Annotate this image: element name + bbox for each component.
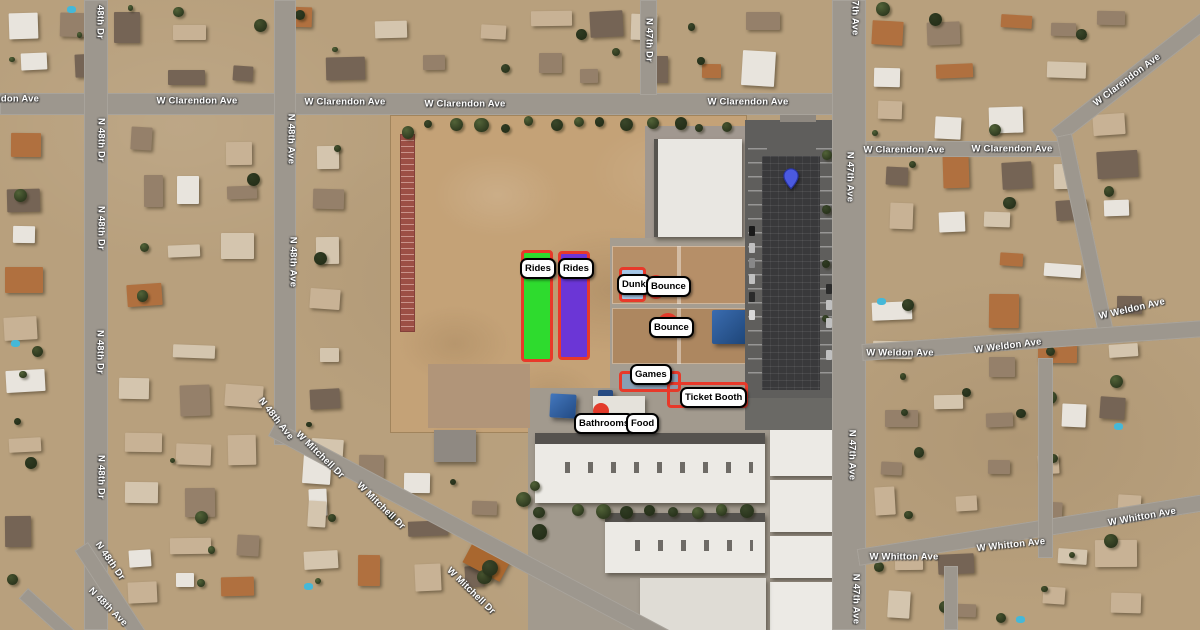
- tree: [688, 23, 696, 31]
- tree: [137, 290, 148, 301]
- house: [9, 437, 42, 452]
- roof-vents: [617, 540, 753, 551]
- house: [125, 432, 162, 451]
- tree: [328, 514, 336, 522]
- house: [874, 67, 901, 86]
- tree: [644, 505, 655, 516]
- house: [472, 500, 497, 514]
- car: [749, 310, 755, 320]
- street-label: W Clarendon Ave: [425, 99, 506, 110]
- callout-ticket-booth: Ticket Booth: [680, 387, 747, 408]
- car: [749, 258, 755, 268]
- house: [1099, 396, 1125, 419]
- street-label: N 48th Dr: [95, 330, 106, 374]
- house: [221, 577, 254, 597]
- house: [942, 154, 969, 188]
- tree: [989, 124, 1001, 136]
- house: [5, 267, 43, 293]
- street-label: N 48th Dr: [96, 455, 107, 499]
- callout-games: Games: [630, 364, 672, 385]
- tree: [900, 373, 907, 380]
- tree: [208, 546, 216, 554]
- house: [580, 68, 598, 83]
- house: [236, 535, 259, 557]
- pool: [1114, 423, 1123, 430]
- tree: [876, 2, 890, 16]
- tree: [929, 13, 942, 26]
- pool: [11, 340, 20, 347]
- house: [144, 175, 164, 208]
- callout-rides: Rides: [520, 258, 556, 279]
- tree: [501, 64, 510, 73]
- house: [423, 54, 445, 70]
- tree: [574, 117, 584, 127]
- house: [531, 11, 573, 26]
- tree: [19, 371, 26, 378]
- house: [320, 348, 339, 362]
- house: [885, 166, 908, 185]
- road-n-48th-dr: [84, 0, 108, 630]
- road-n-48th-ave: [274, 0, 296, 445]
- tree: [872, 130, 878, 136]
- tree: [1104, 186, 1115, 197]
- tree: [620, 506, 633, 519]
- house: [176, 573, 195, 587]
- tree: [1110, 375, 1123, 388]
- tree: [576, 29, 587, 40]
- tree: [1076, 29, 1087, 40]
- house: [127, 581, 157, 604]
- house: [309, 388, 340, 410]
- tree: [402, 126, 415, 139]
- tree: [697, 57, 705, 65]
- tree: [668, 507, 678, 517]
- road-side-street: [944, 566, 958, 630]
- street-label: ndon Ave: [0, 94, 39, 105]
- house: [741, 50, 776, 87]
- pool: [67, 6, 76, 13]
- house: [221, 233, 254, 259]
- tree: [195, 511, 208, 524]
- house: [228, 435, 257, 465]
- car: [749, 226, 755, 236]
- house: [1001, 161, 1033, 189]
- street-label: N 47th Dr: [644, 18, 655, 62]
- playground-pad: [428, 364, 530, 428]
- house: [1044, 262, 1082, 278]
- tree: [1104, 534, 1118, 548]
- street-label: N 47th Ave: [845, 152, 856, 202]
- house: [1047, 61, 1086, 79]
- pool: [304, 583, 313, 590]
- tree: [170, 458, 175, 463]
- tree: [32, 346, 43, 357]
- outbuilding: [434, 430, 476, 462]
- house: [887, 591, 911, 619]
- tree: [173, 7, 184, 18]
- tree: [675, 117, 687, 129]
- house: [414, 564, 441, 592]
- house: [173, 344, 215, 358]
- parking-lot: [745, 120, 838, 398]
- tree: [822, 205, 831, 214]
- tree: [9, 57, 14, 62]
- house: [746, 12, 780, 30]
- house: [934, 395, 963, 410]
- house: [375, 21, 407, 39]
- street-label: N 48th Dr: [96, 118, 107, 162]
- house: [889, 202, 913, 229]
- tree: [962, 388, 971, 397]
- tree: [334, 145, 341, 152]
- house: [130, 126, 153, 150]
- tree: [532, 524, 547, 539]
- tree: [914, 447, 924, 457]
- tree: [716, 504, 727, 515]
- house: [304, 550, 339, 570]
- house: [1000, 14, 1032, 29]
- school-building: [770, 582, 838, 630]
- callout-bounce: Bounce: [646, 276, 691, 297]
- house: [934, 116, 961, 140]
- tree: [295, 10, 305, 20]
- tree: [524, 116, 533, 125]
- house: [589, 10, 623, 38]
- tree: [254, 19, 267, 32]
- school-building: [654, 139, 742, 237]
- tree: [1016, 409, 1025, 418]
- street-label: N 48th Ave: [286, 114, 297, 164]
- house: [4, 317, 38, 342]
- street-label: N 48th Dr: [96, 206, 107, 250]
- road-n-47th-ave: [832, 0, 866, 630]
- car: [749, 274, 755, 284]
- tree: [247, 173, 260, 186]
- house: [168, 70, 205, 85]
- street-label: 7th Ave: [850, 0, 861, 35]
- house: [1092, 113, 1125, 136]
- house: [358, 555, 380, 586]
- callout-rides: Rides: [558, 258, 594, 279]
- house: [955, 495, 977, 511]
- street-label: 48th Dr: [95, 5, 106, 39]
- street-label: N 47th Ave: [851, 574, 862, 624]
- tree: [647, 117, 659, 129]
- tree: [474, 118, 488, 132]
- tree: [1041, 586, 1048, 593]
- tree: [77, 32, 82, 37]
- tree: [530, 481, 540, 491]
- house: [936, 63, 973, 79]
- house: [226, 186, 256, 200]
- house: [5, 516, 31, 547]
- street-label: W Weldon Ave: [866, 348, 934, 359]
- house: [880, 461, 901, 475]
- tree: [128, 5, 133, 10]
- tree: [996, 613, 1006, 623]
- tree: [25, 457, 37, 469]
- house: [1104, 199, 1129, 216]
- tree: [1003, 197, 1015, 209]
- house: [481, 24, 507, 39]
- tree: [7, 574, 18, 585]
- tree: [140, 243, 149, 252]
- school-building: [605, 513, 765, 573]
- house: [701, 64, 720, 78]
- street-label: W Clarendon Ave: [305, 97, 386, 108]
- street-label: W Clarendon Ave: [708, 97, 789, 108]
- pool: [1016, 616, 1025, 623]
- house: [173, 25, 207, 40]
- house: [999, 252, 1022, 266]
- tree: [595, 117, 604, 126]
- house: [539, 53, 562, 73]
- tree: [306, 422, 311, 427]
- house: [307, 501, 327, 528]
- house: [13, 225, 35, 242]
- tree: [612, 48, 620, 56]
- house: [877, 100, 901, 119]
- house: [118, 378, 148, 399]
- house: [988, 459, 1010, 473]
- school-building: [770, 480, 838, 532]
- house: [984, 211, 1010, 227]
- car: [749, 243, 755, 253]
- house: [168, 245, 200, 259]
- tree: [874, 562, 884, 572]
- house: [309, 288, 340, 310]
- roof-vents: [547, 462, 753, 473]
- house: [1062, 404, 1087, 428]
- tree: [14, 418, 21, 425]
- parking-driveway: [745, 398, 838, 430]
- house: [326, 57, 366, 81]
- house: [176, 444, 212, 466]
- pool: [877, 298, 886, 305]
- tree: [551, 119, 563, 131]
- house: [20, 52, 47, 70]
- house: [177, 176, 199, 204]
- running-track: [400, 134, 415, 332]
- house: [1051, 22, 1076, 36]
- road-side-street: [1038, 358, 1053, 558]
- shade-canopy: [549, 393, 576, 418]
- house: [1111, 592, 1141, 612]
- house: [313, 188, 344, 209]
- school-building: [770, 536, 838, 578]
- house: [1108, 343, 1138, 358]
- tree: [332, 47, 338, 53]
- tree: [14, 189, 27, 202]
- callout-food: Food: [626, 413, 659, 434]
- house: [114, 12, 141, 43]
- street-label: W Clarendon Ave: [864, 145, 945, 156]
- tree: [692, 507, 704, 519]
- tree: [315, 578, 321, 584]
- car: [749, 292, 755, 302]
- house: [986, 412, 1014, 427]
- house: [225, 141, 251, 165]
- house: [129, 549, 152, 568]
- street-label: W Clarendon Ave: [157, 96, 238, 107]
- tree: [822, 150, 832, 160]
- callout-bounce: Bounce: [649, 317, 694, 338]
- street-label: N 48th Ave: [288, 237, 299, 287]
- tree: [450, 479, 456, 485]
- street-label: W Clarendon Ave: [972, 144, 1053, 155]
- house: [180, 385, 211, 417]
- school-building: [770, 428, 838, 476]
- house: [125, 482, 158, 504]
- house: [874, 486, 896, 515]
- shade-canopy: [712, 310, 748, 344]
- house: [939, 211, 966, 232]
- house: [170, 537, 211, 553]
- solar-canopy: [762, 156, 820, 390]
- house: [11, 133, 41, 157]
- school-building: [535, 433, 765, 503]
- house: [1096, 150, 1139, 180]
- tree: [197, 579, 205, 587]
- house: [9, 12, 39, 39]
- house: [233, 65, 254, 81]
- street-label: N 47th Ave: [847, 430, 858, 480]
- tree: [904, 511, 912, 519]
- tree: [909, 161, 916, 168]
- street-label: W Whitton Ave: [870, 552, 939, 563]
- satellite-map[interactable]: ndon AveW Clarendon AveW Clarendon AveW …: [0, 0, 1200, 630]
- map-pin-icon[interactable]: [783, 168, 799, 190]
- house: [989, 294, 1019, 328]
- house: [988, 356, 1014, 376]
- house: [1096, 11, 1124, 25]
- house: [871, 20, 903, 46]
- tree: [902, 299, 914, 311]
- school-building: [640, 578, 766, 630]
